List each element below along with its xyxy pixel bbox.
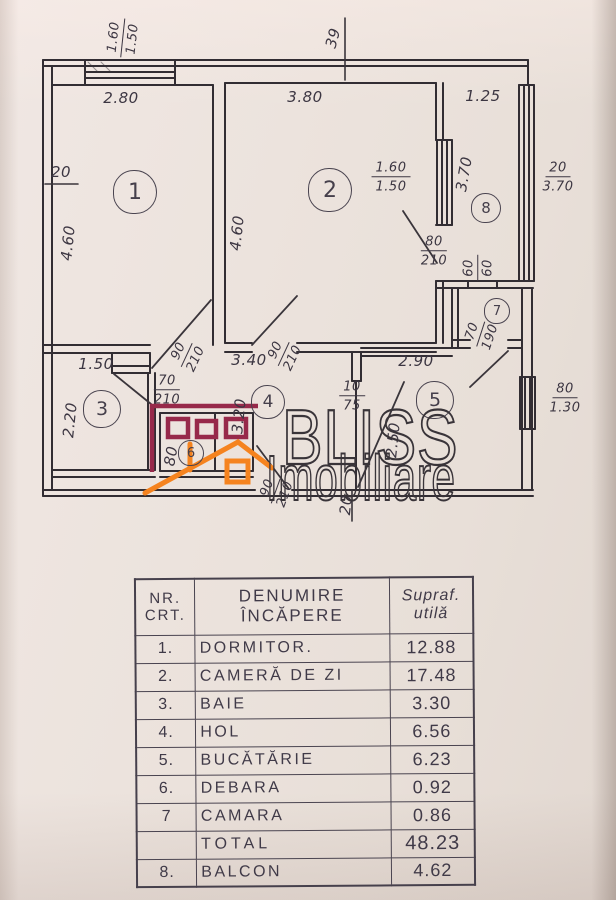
cell-name: DEBARA [196,773,391,802]
cell-name: TOTAL [196,829,391,858]
cell-value: 6.56 [390,717,474,746]
cell-nr: 1. [135,635,195,663]
header-denumire-incapere: DENUMIRE ÎNCĂPERE [195,577,390,634]
logo-window-icon [168,419,188,437]
cell-name: DORMITOR. [195,633,390,662]
scanned-floor-plan-page: { "colors":{"maroon":"#97294a","orange":… [0,0,616,900]
cell-value: 3.30 [390,689,474,718]
cell-nr [137,831,197,859]
room-areas-table: NR. CRT. DENUMIRE ÎNCĂPERE Supraf. utilă… [134,576,476,888]
table-row: 7CAMARA0.86 [136,801,474,831]
walls [43,60,535,496]
cell-nr: 2. [136,663,196,691]
cell-value: 0.92 [391,773,475,802]
cell-name: BUCĂTĂRIE [196,745,391,774]
table-row: 4.HOL6.56 [136,717,474,747]
table-row: 5.BUCĂTĂRIE6.23 [136,745,474,775]
cell-nr: 4. [136,719,196,747]
header-nr-crt: NR. CRT. [135,579,195,635]
table-row: 1.DORMITOR.12.88 [135,633,473,663]
cell-value: 48.23 [391,829,475,858]
cell-name: CAMERĂ DE ZI [195,661,390,690]
table-row-total: TOTAL48.23 [137,829,475,859]
cell-nr: 8. [137,859,197,887]
door-swings [114,211,508,489]
cell-value: 12.88 [390,633,474,662]
header-suprafata-utila: Supraf. utilă [389,577,473,634]
cell-name: CAMARA [196,801,391,830]
table-row: 3.BAIE3.30 [136,689,474,719]
table-row: 2.CAMERĂ DE ZI17.48 [136,661,474,691]
cell-name: BAIE [196,689,391,718]
logo-window-icon [226,419,246,437]
table-row: 8.BALCON4.62 [137,857,475,887]
table-row: 6.DEBARA0.92 [136,773,474,803]
floor-plan-drawing [0,0,616,560]
cell-nr: 6. [136,775,196,803]
cell-nr: 3. [136,691,196,719]
table-header: NR. CRT. DENUMIRE ÎNCĂPERE Supraf. utilă [135,577,473,635]
cell-nr: 7 [136,803,196,831]
table-body: 1.DORMITOR.12.882.CAMERĂ DE ZI17.483.BAI… [135,633,475,887]
cell-name: BALCON [197,857,392,886]
dimension-ticks [45,18,352,521]
cell-value: 4.62 [391,857,475,886]
cell-nr: 5. [136,747,196,775]
cell-name: HOL [196,717,391,746]
cell-value: 0.86 [391,801,475,830]
logo-window-icon [197,421,216,437]
cell-value: 17.48 [390,661,474,690]
cell-value: 6.23 [390,745,474,774]
floor-plan-area: 1.601.50392.803.801.25203.704.604.601.60… [0,0,616,560]
